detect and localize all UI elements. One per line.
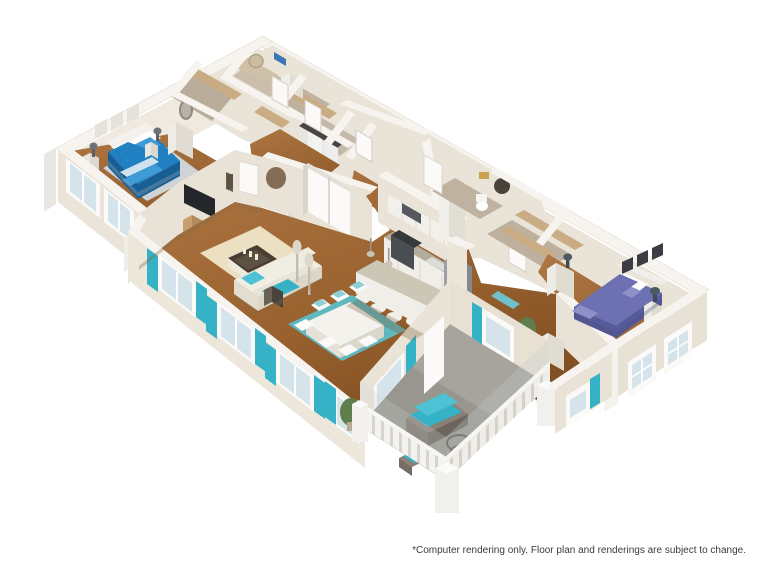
svg-text:*Computer rendering only. Floo: *Computer rendering only. Floor plan and… bbox=[412, 545, 746, 556]
